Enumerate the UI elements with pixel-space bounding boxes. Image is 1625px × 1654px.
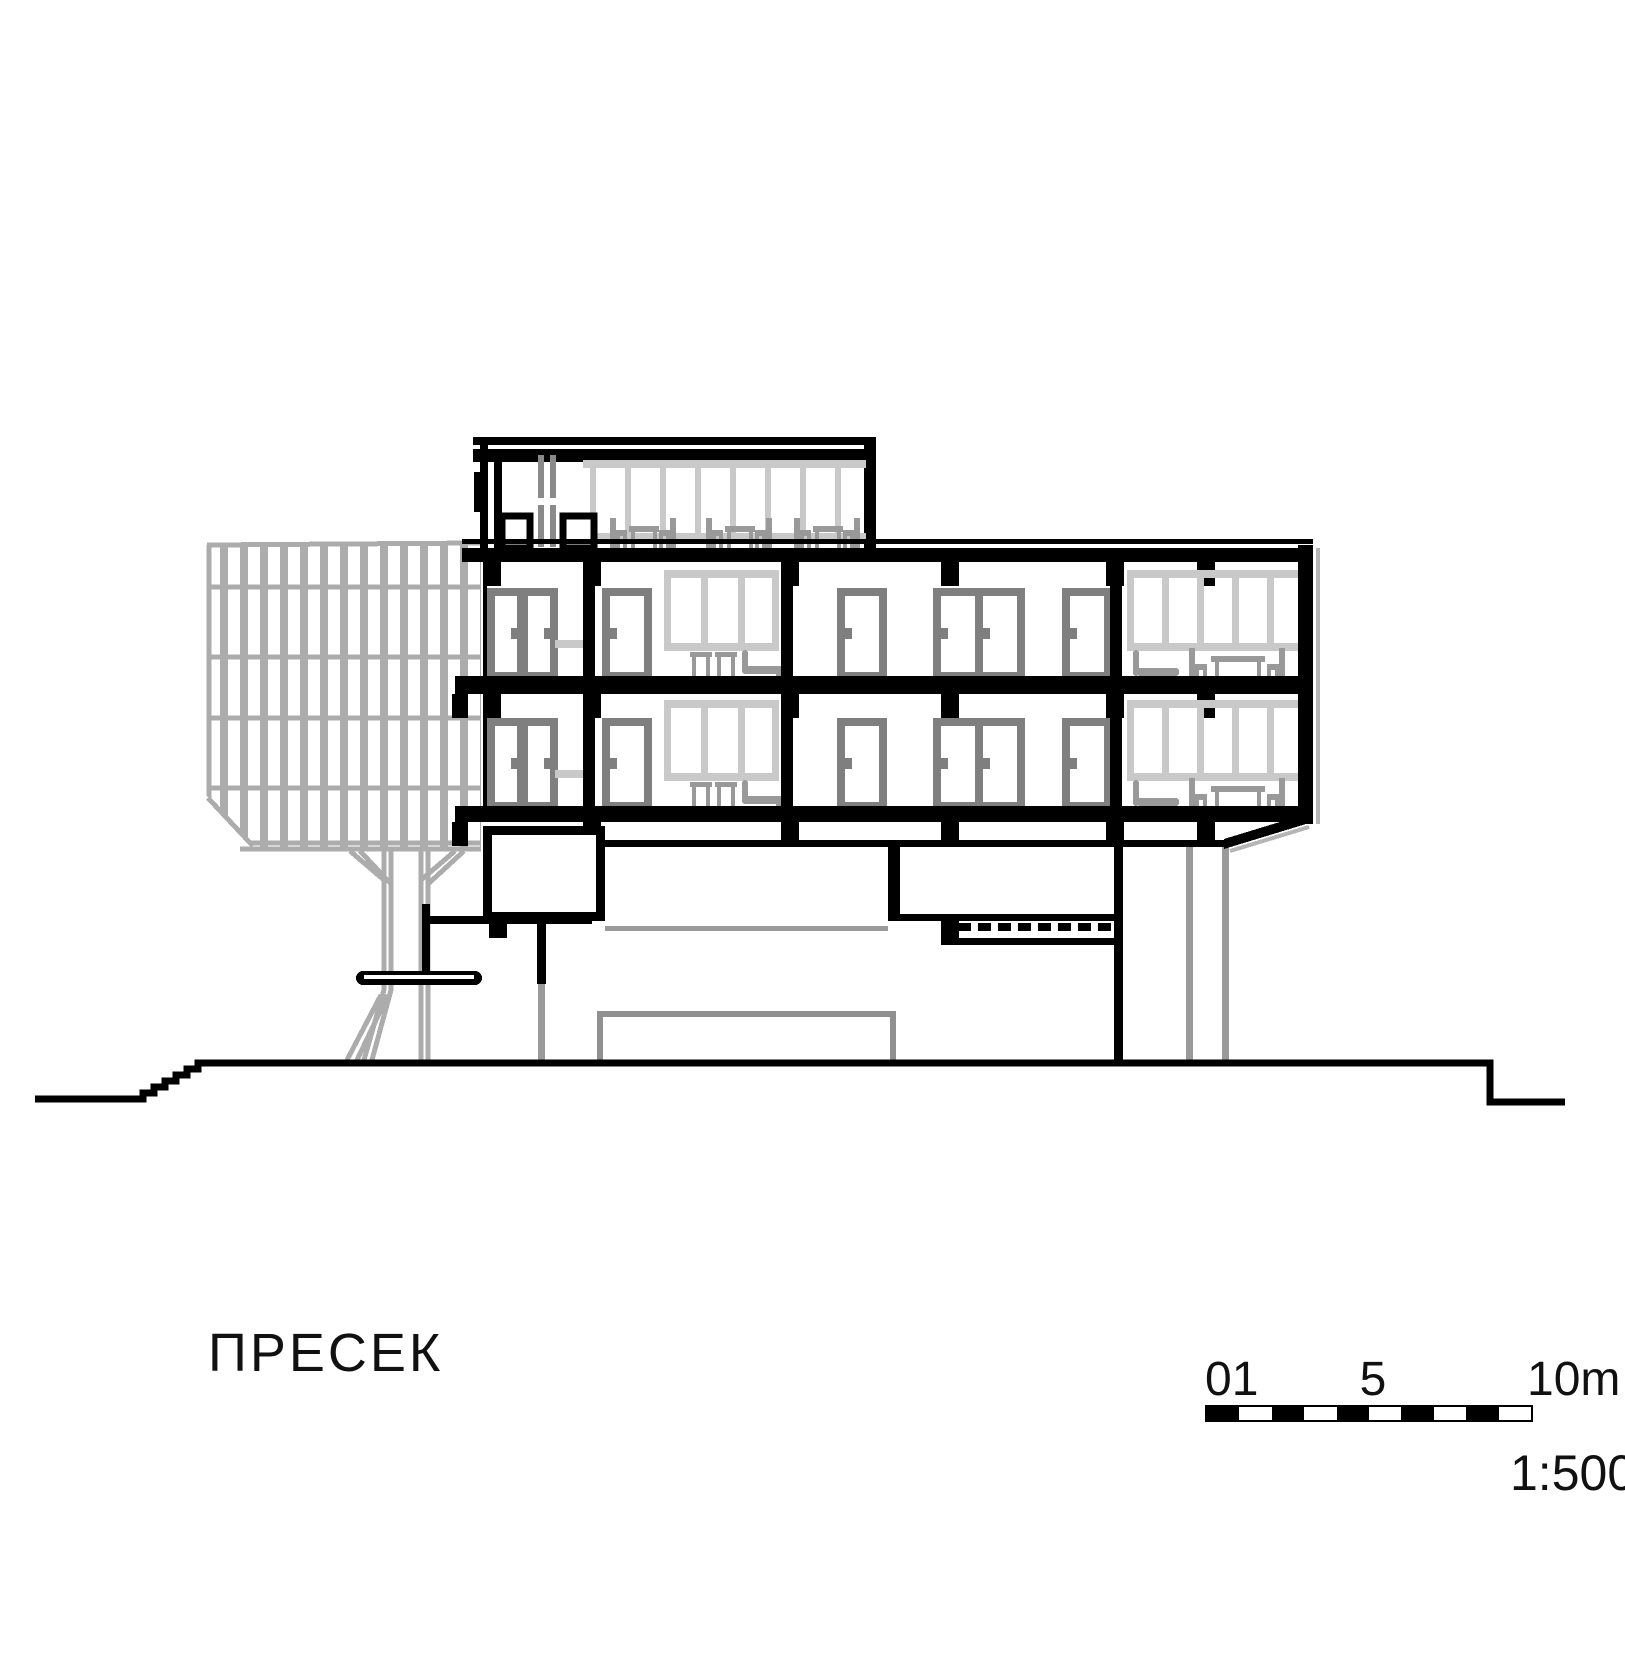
scale-bar-strip [1205,1405,1533,1422]
scale-label-end: 10m [1527,1352,1620,1407]
floor-2 [483,570,1306,676]
scale-segment [1207,1407,1239,1420]
section-drawing-sheet: ПРЕСЕК 01 5 10m 1:500 [0,0,1625,1654]
scale-segment [1499,1407,1531,1420]
floor-slab [455,676,1310,694]
scale-bar: 01 5 10m [1205,1352,1533,1422]
scale-label-mid: 5 [1360,1352,1387,1407]
bottom-slab [455,806,1306,822]
vent-grille [958,923,1111,931]
roof-slab [462,548,1313,562]
scale-segment [1272,1407,1304,1420]
terrain-profile [35,1063,1565,1102]
scale-ratio: 1:500 [1510,1444,1625,1502]
scale-bar-labels: 01 5 10m [1205,1352,1533,1400]
front-column [1114,846,1123,1060]
undercroft [356,826,1123,1060]
scale-segment [1401,1407,1433,1420]
scale-segment [1239,1407,1271,1420]
floor-1 [483,700,1306,806]
sunken-pit [600,1014,893,1060]
scale-segment [1369,1407,1401,1420]
ground-line [35,1063,1565,1102]
right-wall [1298,545,1313,824]
tree-trunk [347,850,464,1060]
tree-canopy [207,545,481,847]
scale-segment [1434,1407,1466,1420]
scale-label-zero: 01 [1205,1352,1258,1407]
scale-segment [1304,1407,1336,1420]
scale-segment [1466,1407,1498,1420]
penthouse-right-wall [864,437,876,548]
rear-column [1186,847,1193,1060]
rear-column [1222,847,1229,1060]
penthouse [473,437,876,548]
drawing-title: ПРЕСЕК [208,1322,443,1384]
building-section [356,437,1313,1060]
scale-segment [1337,1407,1369,1420]
